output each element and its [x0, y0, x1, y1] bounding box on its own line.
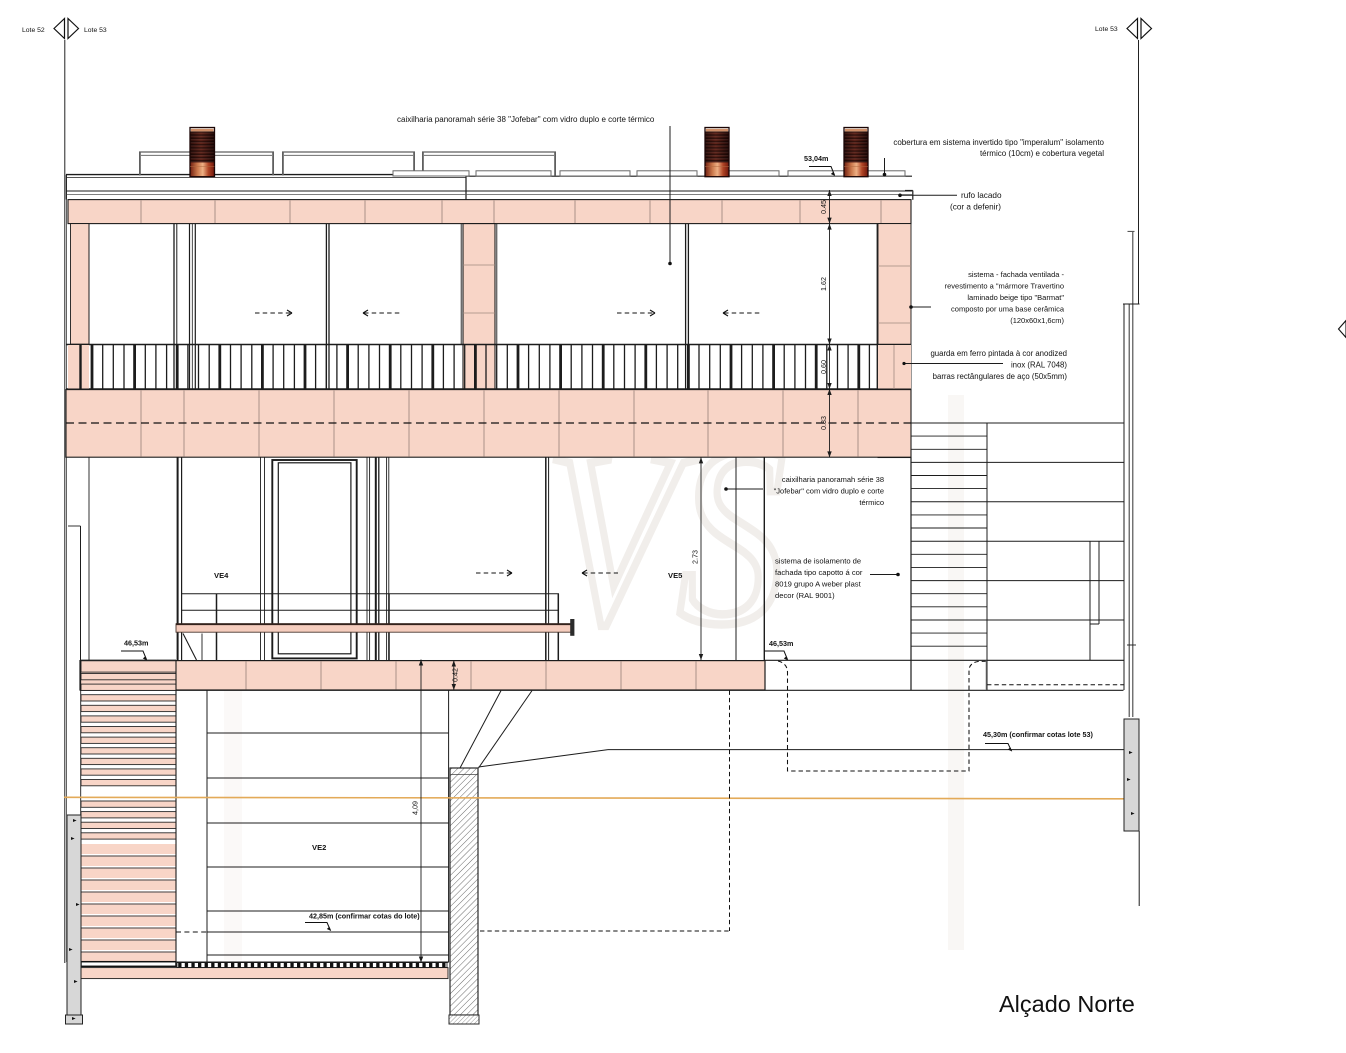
svg-text:VE4: VE4 [214, 571, 229, 580]
svg-text:0.42: 0.42 [451, 668, 460, 682]
svg-text:caixilharia panoramah série 38: caixilharia panoramah série 38 "Jofebar"… [397, 115, 655, 124]
svg-text:térmico (10cm) e cobertura veg: térmico (10cm) e cobertura vegetal [980, 149, 1104, 158]
svg-text:0.45: 0.45 [819, 200, 828, 214]
svg-text:0.60: 0.60 [819, 360, 828, 374]
svg-text:térmico: térmico [859, 498, 884, 507]
svg-text:45,30m (confirmar cotas lote 5: 45,30m (confirmar cotas lote 53) [983, 730, 1093, 739]
svg-text:caixilharia panoramah série 38: caixilharia panoramah série 38 [782, 475, 884, 484]
svg-text:composto por uma base cerâmica: composto por uma base cerâmica [951, 305, 1065, 314]
svg-text:Alçado Norte: Alçado Norte [999, 991, 1135, 1017]
svg-text:8019 grupo A weber plast: 8019 grupo A weber plast [775, 580, 862, 589]
svg-text:VE5: VE5 [668, 571, 683, 580]
svg-text:46,53m: 46,53m [769, 639, 793, 648]
svg-text:(120x60x1,6cm): (120x60x1,6cm) [1010, 316, 1064, 325]
svg-text:revestimento a "mármore Trave: revestimento a "mármore Travertino [945, 282, 1064, 291]
svg-text:2.73: 2.73 [691, 550, 700, 564]
svg-text:Lote 53: Lote 53 [84, 27, 107, 34]
svg-text:4,09: 4,09 [411, 801, 420, 815]
svg-text:Lote 53: Lote 53 [1095, 26, 1118, 33]
svg-text:VE2: VE2 [312, 843, 326, 852]
svg-text:barras rectângulares de aço (5: barras rectângulares de aço (50x5mm) [933, 372, 1068, 381]
svg-text:46,53m: 46,53m [124, 639, 148, 648]
svg-text:0.83: 0.83 [819, 416, 828, 430]
svg-text:42,85m (confirmar cotas do lot: 42,85m (confirmar cotas do lote) [309, 912, 420, 921]
svg-text:sistema de isolamento de: sistema de isolamento de [775, 557, 861, 566]
svg-text:laminado beige tipo "Barmat": laminado beige tipo "Barmat" [967, 293, 1064, 302]
svg-text:sistema - fachada ventilada -: sistema - fachada ventilada - [968, 270, 1064, 279]
svg-text:"Jofebar" com vidro duplo e co: "Jofebar" com vidro duplo e corte [774, 487, 884, 496]
svg-text:1.62: 1.62 [819, 277, 828, 291]
svg-text:53,04m: 53,04m [804, 154, 828, 163]
svg-text:(cor a defenir): (cor a defenir) [950, 203, 1001, 212]
svg-text:Lote 52: Lote 52 [22, 27, 45, 34]
svg-text:fachada tipo capotto á cor: fachada tipo capotto á cor [775, 568, 863, 577]
svg-text:cobertura em sistema invertido: cobertura em sistema invertido tipo "imp… [893, 138, 1104, 147]
svg-text:rufo lacado: rufo lacado [961, 191, 1002, 200]
svg-text:decor (RAL 9001): decor (RAL 9001) [775, 591, 835, 600]
svg-text:guarda em ferro pintada à cor: guarda em ferro pintada à cor anodized [930, 349, 1067, 358]
svg-text:inox (RAL 7048): inox (RAL 7048) [1011, 361, 1067, 370]
